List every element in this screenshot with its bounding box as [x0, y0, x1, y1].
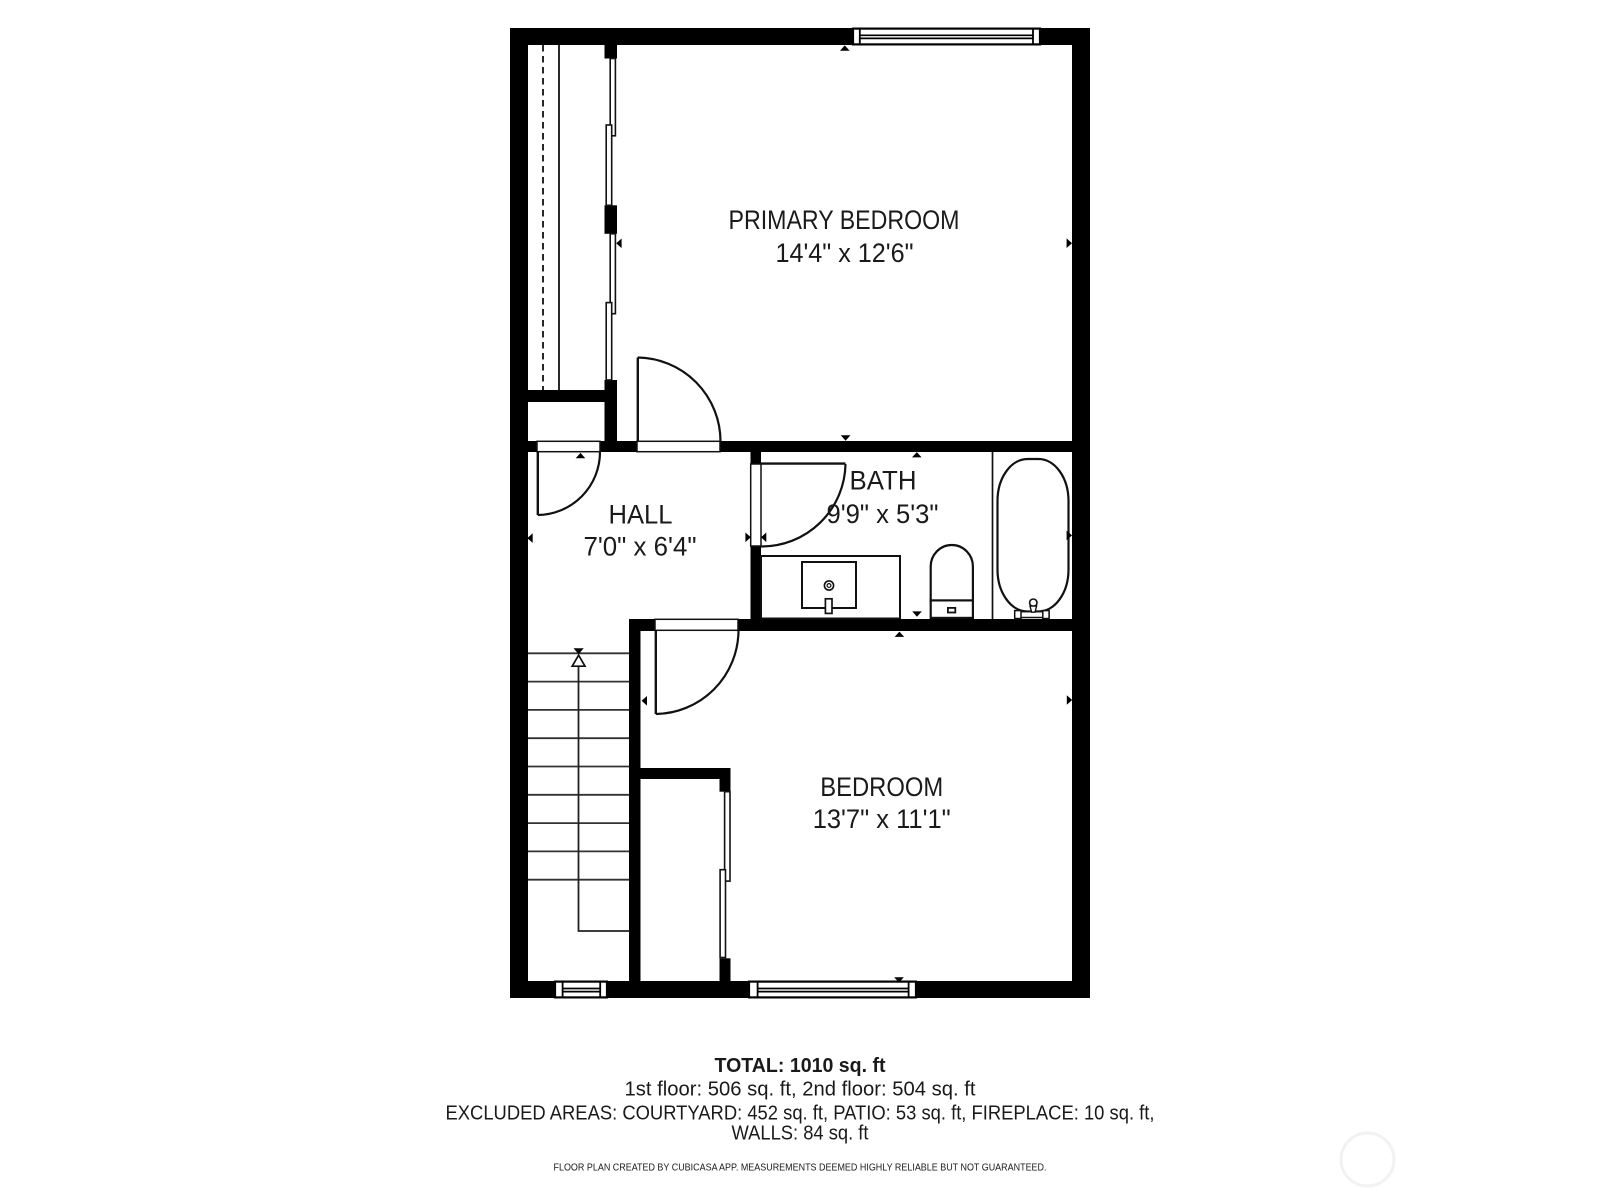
- svg-text:BATH: BATH: [850, 466, 917, 496]
- svg-text:PRIMARY BEDROOM: PRIMARY BEDROOM: [729, 205, 960, 235]
- svg-text:WALLS: 84 sq. ft: WALLS: 84 sq. ft: [732, 1122, 869, 1145]
- svg-text:BEDROOM: BEDROOM: [820, 772, 943, 802]
- svg-text:9'9" x 5'3": 9'9" x 5'3": [827, 499, 939, 529]
- svg-text:FLOOR PLAN CREATED BY CUBICASA: FLOOR PLAN CREATED BY CUBICASA APP. MEAS…: [554, 1162, 1047, 1174]
- svg-text:14'4" x 12'6": 14'4" x 12'6": [776, 238, 914, 268]
- svg-text:7'0" x 6'4": 7'0" x 6'4": [584, 532, 697, 562]
- svg-text:13'7" x 11'1": 13'7" x 11'1": [813, 804, 951, 834]
- svg-text:TOTAL: 1010 sq. ft: TOTAL: 1010 sq. ft: [715, 1054, 886, 1077]
- svg-text:HALL: HALL: [609, 499, 673, 529]
- svg-text:1st floor: 506 sq. ft, 2nd flo: 1st floor: 506 sq. ft, 2nd floor: 504 sq…: [625, 1077, 976, 1100]
